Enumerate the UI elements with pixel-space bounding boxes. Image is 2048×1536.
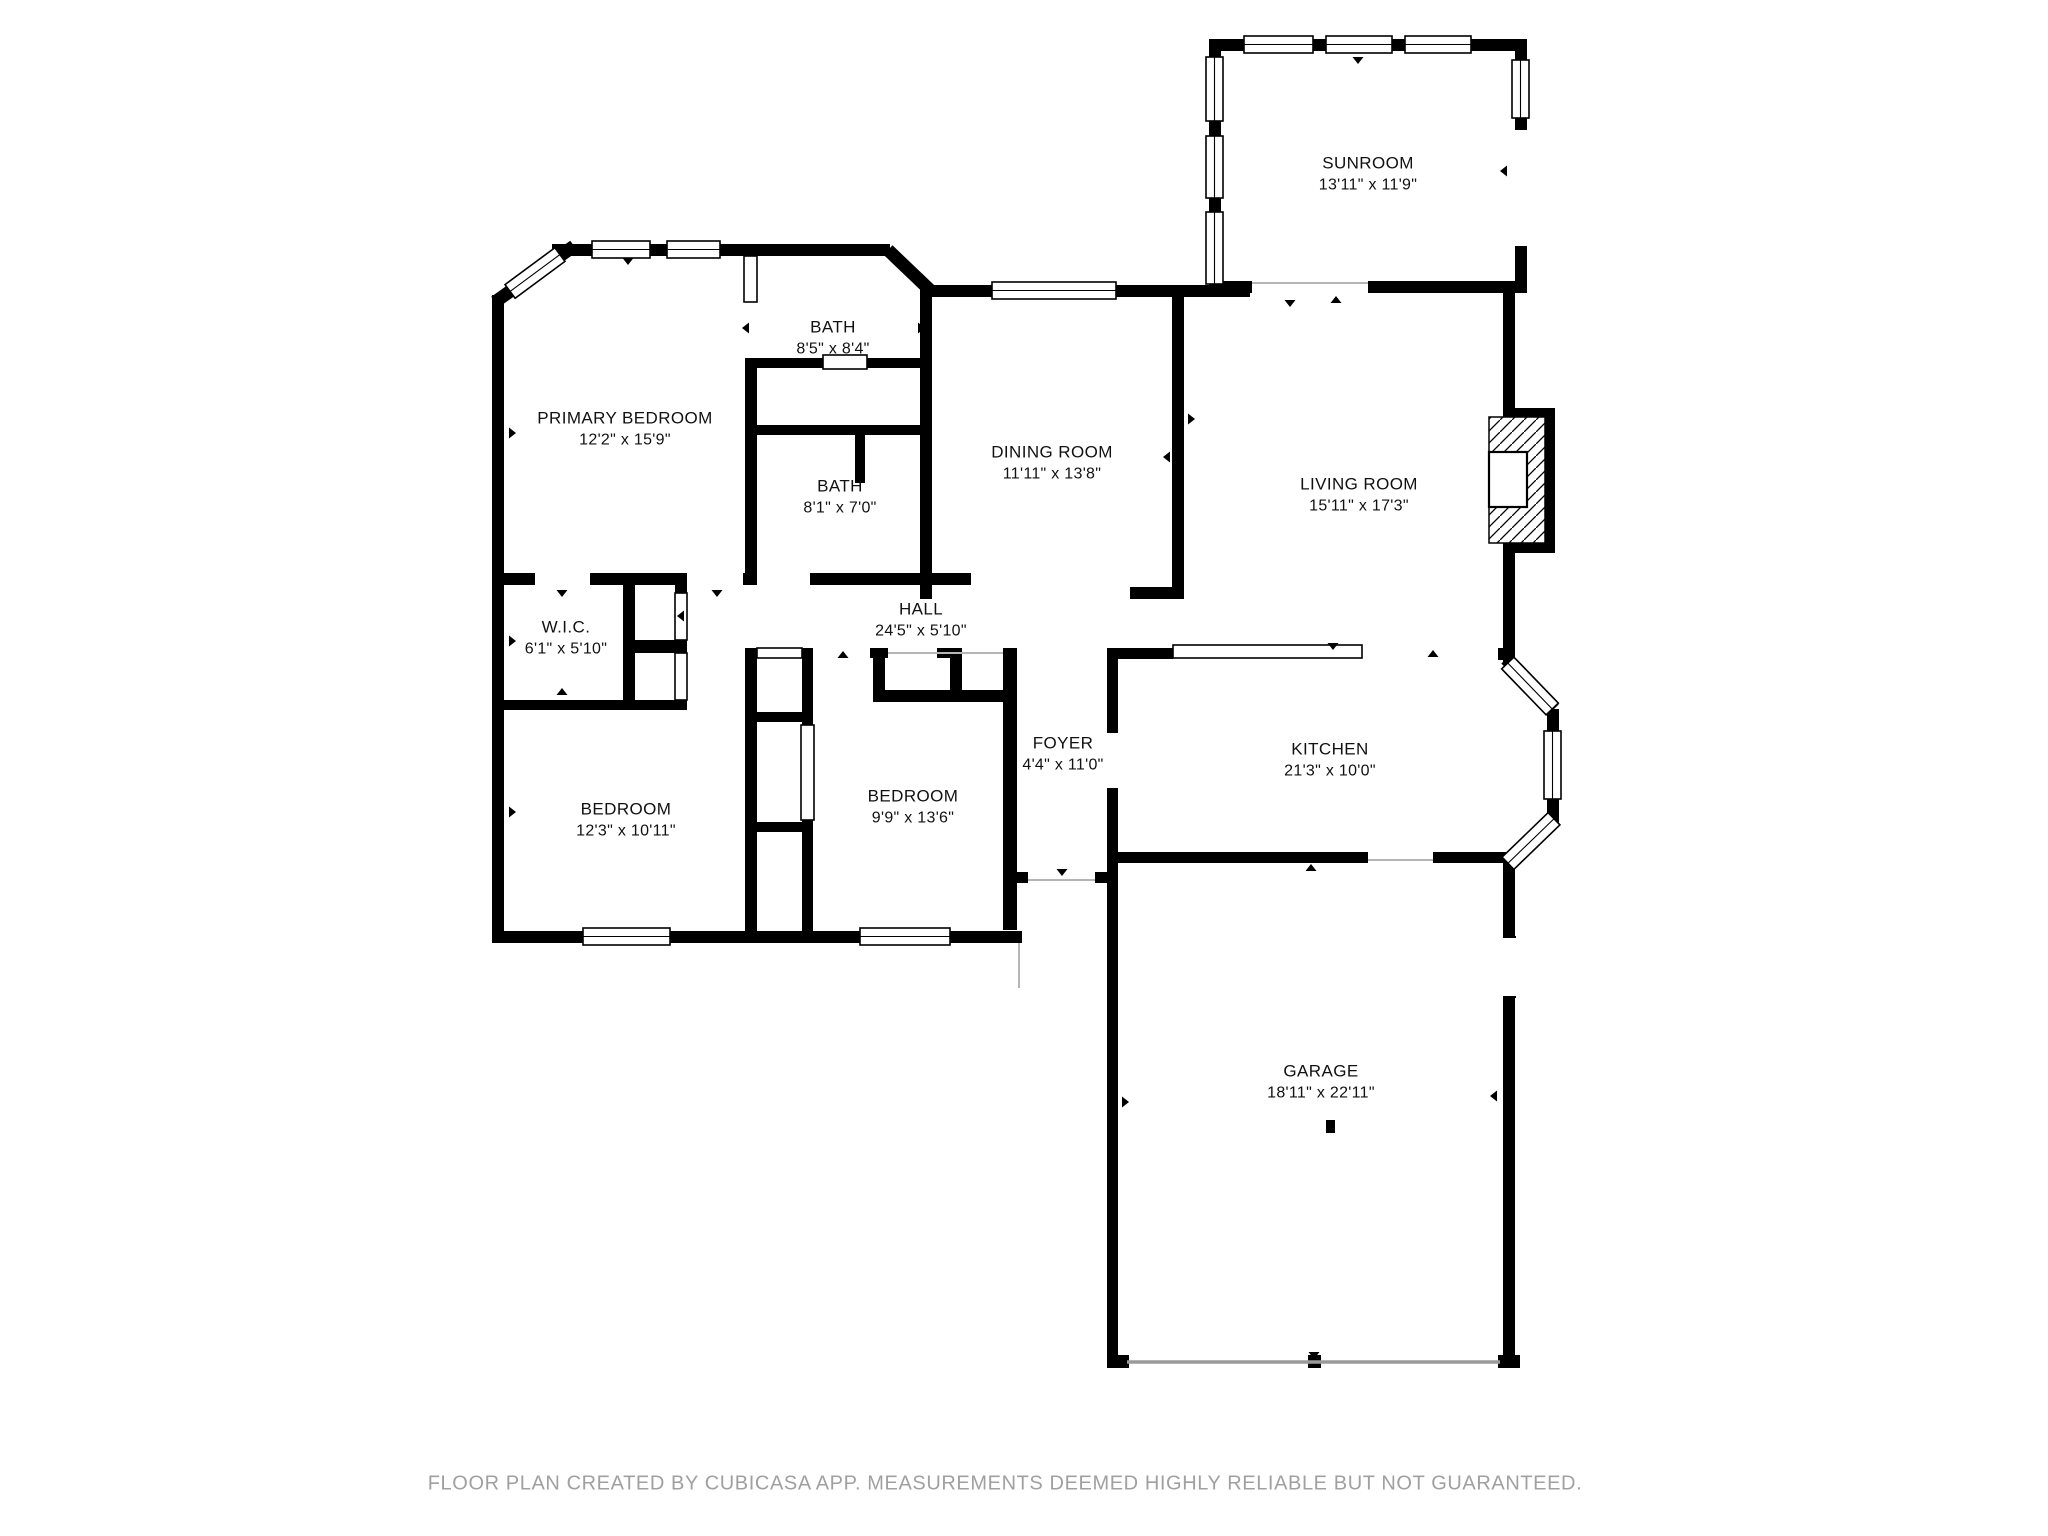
linen-closet-divider	[623, 640, 687, 653]
room-dims: 12'2" x 15'9"	[537, 430, 712, 451]
garage-right-wall-b	[1503, 997, 1515, 1368]
tick-down-icon	[1057, 869, 1068, 876]
tick-down-icon	[557, 590, 568, 597]
room-name: BEDROOM	[576, 799, 676, 821]
sunroom-right-window	[1512, 60, 1529, 118]
room-label-bath-lower: BATH 8'1" x 7'0"	[803, 476, 876, 519]
garage-corner-right	[1498, 1355, 1520, 1368]
closet-column-left-wall	[745, 648, 757, 931]
tick-right-icon	[509, 428, 516, 439]
opening-lines	[888, 283, 1516, 1362]
sunroom-left-window-1	[1206, 57, 1223, 121]
sunroom-left-window-2	[1206, 136, 1223, 198]
sunroom-bottom-wall-right	[1368, 281, 1527, 293]
room-name: SUNROOM	[1319, 153, 1417, 175]
hall-top-wall-a	[504, 573, 535, 585]
garage-corner-left	[1107, 1355, 1129, 1368]
kitchen-bay-window-top	[1502, 657, 1559, 715]
bath-divider-wall	[750, 425, 928, 435]
linen-closet-door-lower	[675, 653, 687, 700]
garage-right-wall-a	[1503, 863, 1515, 937]
tick-down-icon	[1285, 300, 1296, 307]
tick-down-icon	[1353, 57, 1364, 64]
room-dims: 6'1" x 5'10"	[525, 639, 607, 660]
dining-living-divider	[1172, 297, 1184, 599]
room-label-sunroom: SUNROOM 13'11" x 11'9"	[1319, 153, 1417, 196]
tick-up-icon	[1331, 296, 1342, 303]
room-name: KITCHEN	[1284, 739, 1376, 761]
garage-column-marker	[1326, 1120, 1335, 1133]
sunroom-top-window-2	[1326, 36, 1392, 53]
bedroom-left-window	[583, 928, 670, 945]
room-name: BATH	[803, 476, 876, 498]
hall-top-wall-c	[743, 573, 757, 585]
front-wall-a	[1005, 872, 1028, 883]
hall-top-wall-b	[590, 573, 687, 585]
tick-left-icon	[1500, 166, 1507, 177]
tick-left-icon	[1163, 452, 1170, 463]
tick-up-icon	[1306, 864, 1317, 871]
tick-up-icon	[1428, 650, 1439, 657]
walls	[492, 39, 1527, 1368]
room-dims: 8'1" x 7'0"	[803, 498, 876, 519]
foyer-left-wall	[1003, 648, 1017, 930]
room-label-wic: W.I.C. 6'1" x 5'10"	[525, 617, 607, 660]
room-label-bedroom-middle: BEDROOM 9'9" x 13'6"	[868, 786, 959, 829]
room-name: DINING ROOM	[991, 442, 1113, 464]
tick-up-icon	[838, 651, 849, 658]
room-name: HALL	[875, 599, 967, 621]
closet-column-right-wall-b	[802, 820, 813, 931]
bath-west-wall	[745, 358, 757, 575]
footer-disclaimer: FLOOR PLAN CREATED BY CUBICASA APP. MEAS…	[428, 1473, 1583, 1496]
room-dims: 18'11" x 22'11"	[1267, 1083, 1375, 1104]
closet-column-side-door	[801, 725, 814, 820]
room-dims: 21'3" x 10'0"	[1284, 761, 1376, 782]
closet-column-top-door	[757, 648, 802, 658]
sunroom-left-window-3	[1206, 212, 1223, 284]
dining-ne-diagonal-wall	[888, 250, 933, 293]
tick-left-icon	[1490, 1091, 1497, 1102]
hall-closet-bottom-wall	[873, 690, 1013, 702]
hall-top-wall-d	[810, 573, 971, 585]
room-dims: 8'5" x 8'4"	[796, 339, 869, 360]
room-name: LIVING ROOM	[1300, 474, 1418, 496]
room-label-hall: HALL 24'5" x 5'10"	[875, 599, 967, 642]
primary-bay-window	[505, 248, 565, 299]
tick-right-icon	[1188, 414, 1195, 425]
tick-right-icon	[1122, 1097, 1129, 1108]
bedroom-middle-window	[860, 928, 950, 945]
left-exterior-wall	[492, 295, 504, 943]
room-name: W.I.C.	[525, 617, 607, 639]
primary-top-window-2	[667, 241, 720, 258]
room-dims: 12'3" x 10'11"	[576, 821, 676, 842]
tick-right-icon	[509, 807, 516, 818]
sunroom-top-window-1	[1244, 36, 1313, 53]
room-dims: 13'11" x 11'9"	[1319, 175, 1417, 196]
fireplace	[1489, 408, 1555, 553]
room-name: GARAGE	[1267, 1061, 1375, 1083]
kitchen-left-wall-a	[1107, 648, 1118, 733]
closet-column-divider-a	[745, 712, 813, 722]
dining-west-wall	[920, 287, 932, 599]
kitchen-garage-left-wall	[1107, 788, 1118, 1368]
living-right-wall-a	[1503, 293, 1515, 408]
room-label-primary-bedroom: PRIMARY BEDROOM 12'2" x 15'9"	[537, 408, 712, 451]
room-name: PRIMARY BEDROOM	[537, 408, 712, 430]
room-label-kitchen: KITCHEN 21'3" x 10'0"	[1284, 739, 1376, 782]
room-dims: 9'9" x 13'6"	[868, 808, 959, 829]
room-dims: 15'11" x 17'3"	[1300, 496, 1418, 517]
dining-window	[992, 282, 1116, 299]
tick-down-icon	[712, 590, 723, 597]
linen-closet-corner	[675, 573, 687, 593]
room-name: BATH	[796, 317, 869, 339]
room-name: BEDROOM	[868, 786, 959, 808]
tick-down-icon	[623, 258, 634, 265]
tick-up-icon	[557, 688, 568, 695]
floor-plan-page: SUNROOM 13'11" x 11'9" PRIMARY BEDROOM 1…	[0, 0, 2048, 1536]
kitchen-bay-window-bottom	[1502, 813, 1560, 870]
kitchen-bottom-wall-a	[1113, 852, 1368, 863]
sunroom-top-window-3	[1405, 36, 1471, 53]
room-label-bath-upper: BATH 8'5" x 8'4"	[796, 317, 869, 360]
primary-bath-door-leaf	[744, 256, 757, 302]
room-name: FOYER	[1022, 733, 1103, 755]
room-label-living-room: LIVING ROOM 15'11" x 17'3"	[1300, 474, 1418, 517]
room-label-dining-room: DINING ROOM 11'11" x 13'8"	[991, 442, 1113, 485]
kitchen-bay-window-mid	[1544, 731, 1561, 799]
tick-right-icon	[509, 636, 516, 647]
closet-column-divider-b	[745, 822, 813, 832]
fireplace-firebox	[1489, 452, 1527, 507]
tick-left-icon	[742, 323, 749, 334]
room-dims: 24'5" x 5'10"	[875, 621, 967, 642]
door-leaves	[675, 256, 1362, 820]
living-right-wall-b	[1503, 553, 1515, 662]
primary-top-window-1	[592, 241, 650, 258]
wic-bottom-wall	[492, 700, 687, 710]
room-dims: 4'4" x 11'0"	[1022, 755, 1103, 776]
room-label-garage: GARAGE 18'11" x 22'11"	[1267, 1061, 1375, 1104]
room-label-bedroom-left: BEDROOM 12'3" x 10'11"	[576, 799, 676, 842]
room-dims: 11'11" x 13'8"	[991, 464, 1113, 485]
room-label-foyer: FOYER 4'4" x 11'0"	[1022, 733, 1103, 776]
kitchen-top-wall	[1107, 648, 1173, 659]
